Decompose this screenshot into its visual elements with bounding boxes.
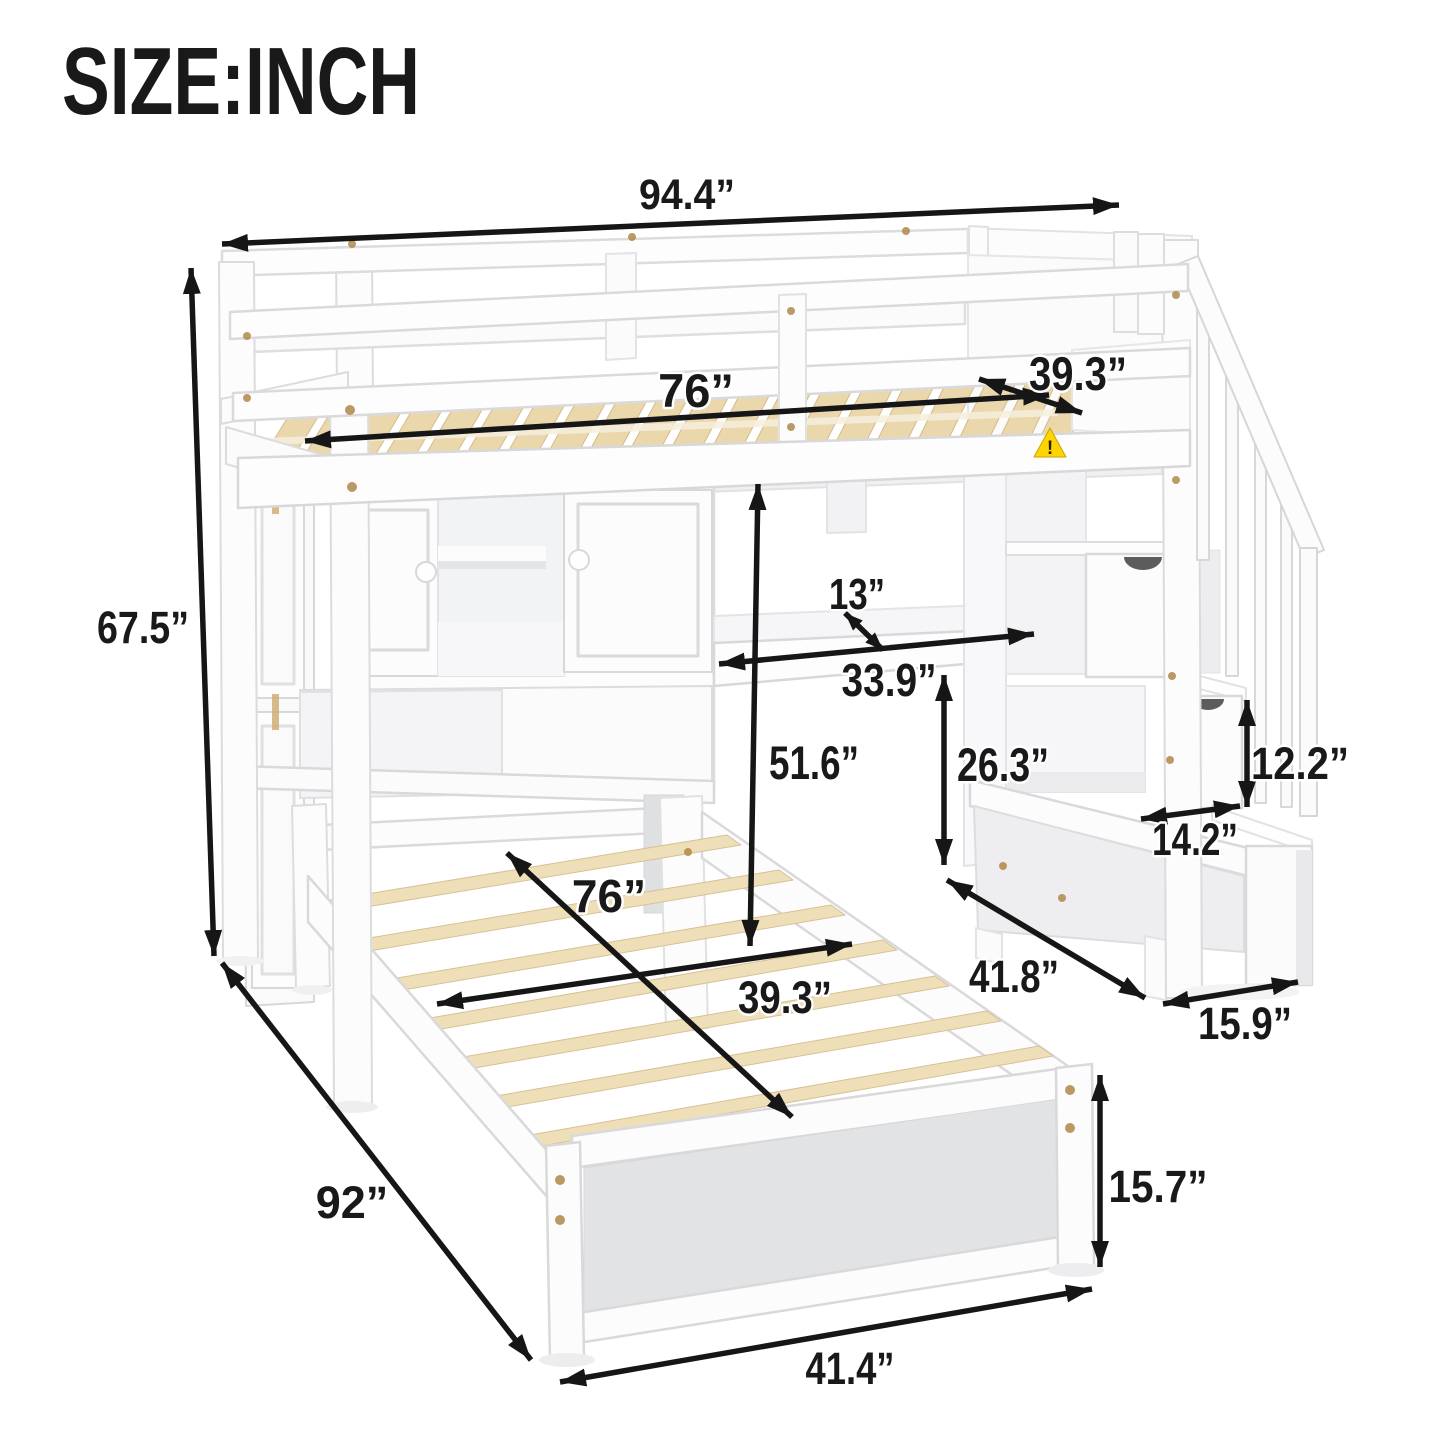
svg-text:94.4”: 94.4” [639, 171, 735, 219]
svg-text:12.2”: 12.2” [1251, 738, 1349, 789]
svg-text:15.7”: 15.7” [1109, 1161, 1208, 1212]
svg-text:39.3”: 39.3” [1029, 347, 1127, 400]
svg-text:76”: 76” [572, 870, 646, 922]
svg-text:26.3”: 26.3” [957, 738, 1049, 791]
svg-text:92”: 92” [316, 1177, 389, 1228]
svg-text:14.2”: 14.2” [1152, 814, 1238, 865]
svg-text:41.8”: 41.8” [969, 951, 1059, 1002]
svg-text:39.3”: 39.3” [738, 972, 832, 1023]
svg-text:51.6”: 51.6” [769, 736, 859, 789]
svg-text:67.5”: 67.5” [97, 602, 189, 653]
svg-text:41.4”: 41.4” [806, 1343, 895, 1394]
svg-text:76”: 76” [658, 364, 734, 417]
svg-text:13”: 13” [829, 570, 885, 619]
svg-text:15.9”: 15.9” [1198, 998, 1292, 1049]
svg-text:!: ! [1047, 438, 1053, 459]
svg-text:33.9”: 33.9” [842, 654, 937, 706]
svg-text:SIZE:INCH: SIZE:INCH [62, 28, 420, 135]
